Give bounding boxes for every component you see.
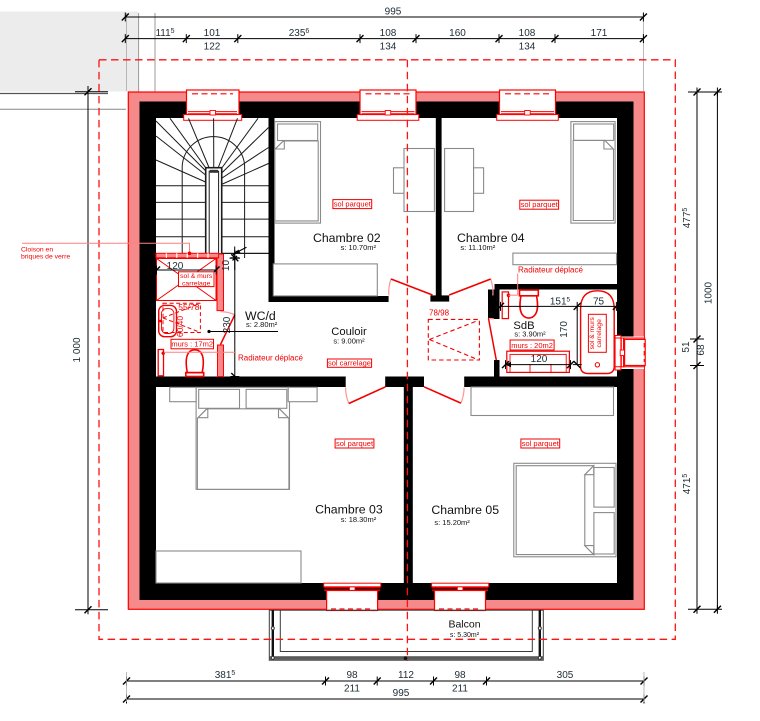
svg-text:995: 995 <box>385 7 402 18</box>
svg-text:s: 18.30m²: s: 18.30m² <box>341 515 377 524</box>
svg-text:s: 5.30m²: s: 5.30m² <box>450 632 480 639</box>
svg-text:10: 10 <box>221 260 232 272</box>
svg-text:211: 211 <box>452 684 468 695</box>
svg-text:160: 160 <box>449 28 466 39</box>
svg-text:75: 75 <box>593 296 605 307</box>
svg-text:108: 108 <box>380 28 397 39</box>
svg-text:sol & murs: sol & murs <box>180 273 213 280</box>
svg-text:carrelage: carrelage <box>596 319 603 348</box>
svg-text:Radiateur déplacé: Radiateur déplacé <box>238 354 303 363</box>
svg-text:122: 122 <box>204 42 221 53</box>
svg-text:s: 10.70m²: s: 10.70m² <box>341 243 377 252</box>
svg-text:120: 120 <box>167 261 184 272</box>
svg-text:murs : 20m2: murs : 20m2 <box>511 341 553 350</box>
svg-text:230: 230 <box>222 316 233 333</box>
svg-text:s: 15.20m²: s: 15.20m² <box>434 518 470 527</box>
svg-text:171: 171 <box>591 28 608 39</box>
svg-text:51: 51 <box>681 341 692 353</box>
svg-text:211: 211 <box>344 684 360 695</box>
svg-text:134: 134 <box>380 42 397 53</box>
svg-text:Radiateur déplacé: Radiateur déplacé <box>518 265 583 274</box>
svg-text:305: 305 <box>557 670 574 681</box>
svg-text:68: 68 <box>696 344 707 356</box>
svg-text:sol carrelage: sol carrelage <box>328 359 371 368</box>
svg-text:briques de verre: briques de verre <box>21 254 70 261</box>
svg-text:Cloison en: Cloison en <box>21 247 53 254</box>
svg-text:sol parquet: sol parquet <box>522 439 560 448</box>
svg-text:78/98: 78/98 <box>429 308 450 317</box>
svg-text:s: 2.80m²: s: 2.80m² <box>246 320 278 329</box>
svg-text:1000: 1000 <box>704 281 715 304</box>
svg-text:134: 134 <box>519 42 536 53</box>
svg-text:Balcon: Balcon <box>448 619 480 631</box>
svg-text:sol parquet: sol parquet <box>521 200 559 209</box>
svg-text:120: 120 <box>531 354 548 365</box>
svg-text:55/78: 55/78 <box>178 302 200 312</box>
svg-text:60/40: 60/40 <box>175 316 185 338</box>
svg-text:995: 995 <box>393 688 410 699</box>
svg-text:s: 9.00m²: s: 9.00m² <box>333 336 365 345</box>
svg-text:101: 101 <box>204 28 221 39</box>
svg-text:sol parquet: sol parquet <box>334 200 372 209</box>
svg-text:170: 170 <box>559 321 570 338</box>
svg-text:98: 98 <box>346 670 358 681</box>
svg-text:1 000: 1 000 <box>72 337 83 362</box>
svg-text:112: 112 <box>398 670 414 681</box>
svg-text:108: 108 <box>519 28 536 39</box>
svg-text:murs : 17m2: murs : 17m2 <box>171 340 213 349</box>
svg-text:sol parquet: sol parquet <box>336 439 374 448</box>
svg-text:sol & murs: sol & murs <box>589 317 596 350</box>
svg-text:98: 98 <box>454 670 466 681</box>
svg-text:carrelage: carrelage <box>182 280 211 287</box>
svg-text:s: 3.90m²: s: 3.90m² <box>514 330 546 339</box>
svg-text:s: 11.10m²: s: 11.10m² <box>460 243 495 252</box>
svg-text:Chambre 05: Chambre 05 <box>431 503 499 517</box>
